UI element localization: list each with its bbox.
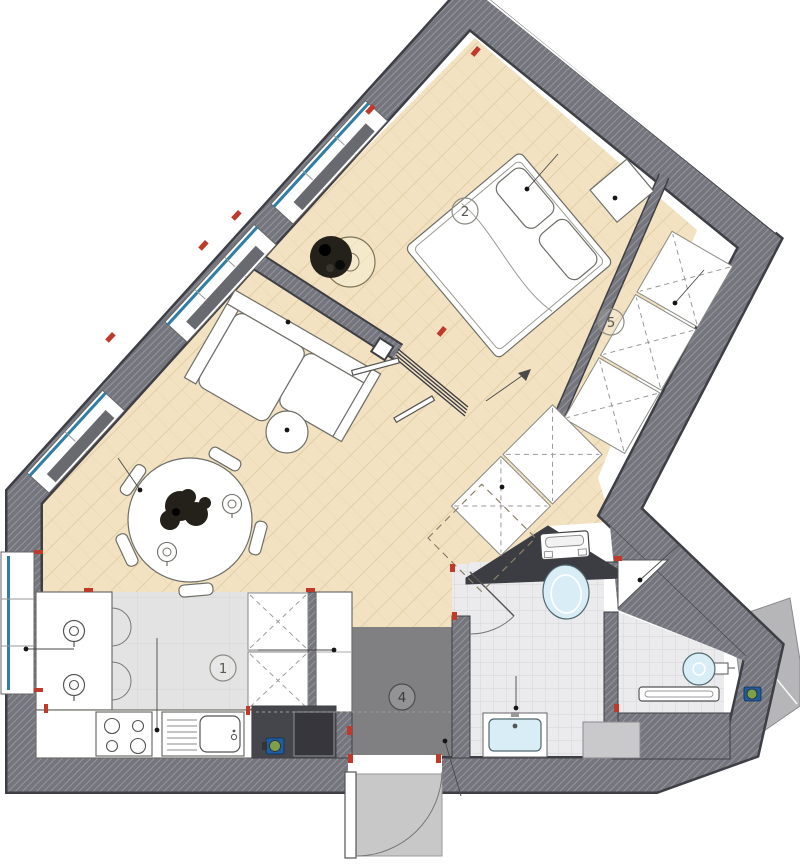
room-label-kitchen: 1 — [210, 655, 236, 681]
washbasin — [483, 712, 547, 757]
kitchen-left-counter — [36, 592, 112, 710]
water-valve-icon — [744, 687, 761, 701]
concealed-cistern — [540, 531, 590, 560]
floor-plan-drawing: 1 2 4 5 — [0, 0, 800, 866]
svg-text:5: 5 — [607, 315, 616, 331]
room-label-wardrobe: 5 — [598, 309, 624, 335]
svg-text:4: 4 — [398, 690, 407, 706]
stove — [96, 712, 152, 756]
entrance-door-leaf — [345, 772, 356, 858]
svg-text:2: 2 — [461, 204, 470, 220]
kitchen-closet-wall-strip — [308, 592, 316, 712]
kitchen-utility-duct — [252, 706, 336, 758]
bath-counter-block — [583, 722, 640, 758]
kitchen-sink — [162, 712, 244, 756]
shower-drain — [639, 687, 719, 701]
dining-chair — [179, 583, 214, 598]
room-label-hallway: 4 — [389, 684, 415, 710]
room-label-bedroom: 2 — [452, 198, 478, 224]
hall-bath-wall — [452, 616, 470, 758]
floor-plan-page: 1 2 4 5 — [0, 0, 800, 866]
svg-text:1: 1 — [219, 661, 228, 677]
entrance-door — [345, 755, 442, 858]
